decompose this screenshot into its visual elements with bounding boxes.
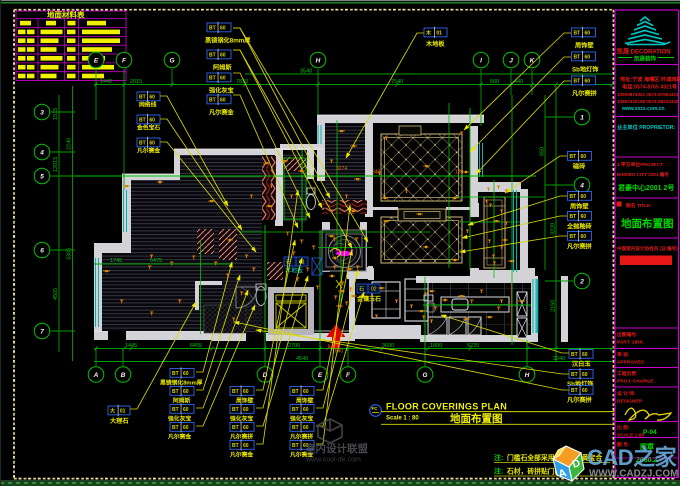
- svg-text:图名 TITLE:: 图名 TITLE:: [626, 202, 652, 209]
- svg-text:BT: BT: [139, 141, 146, 147]
- svg-text:60: 60: [580, 214, 586, 220]
- svg-text:BT: BT: [574, 31, 581, 37]
- svg-text:60: 60: [243, 443, 249, 449]
- svg-text:BT: BT: [570, 214, 577, 220]
- svg-text:60: 60: [582, 372, 588, 378]
- svg-text:3220: 3220: [551, 223, 557, 235]
- svg-text:1800: 1800: [430, 343, 442, 349]
- svg-text:1.甲方单位PROJECT:: 1.甲方单位PROJECT:: [617, 161, 664, 168]
- svg-text:Sb地灯饰: Sb地灯饰: [572, 66, 598, 74]
- svg-text:周饰壁: 周饰壁: [575, 42, 594, 50]
- svg-text:01: 01: [436, 31, 442, 37]
- svg-text:02: 02: [371, 287, 377, 293]
- svg-text:B: B: [121, 372, 126, 379]
- svg-text:BT: BT: [172, 407, 179, 413]
- svg-text:www.cool-de.com: www.cool-de.com: [305, 457, 361, 464]
- svg-text:4540: 4540: [296, 356, 308, 362]
- svg-text:BT: BT: [209, 26, 216, 32]
- svg-text:4505: 4505: [53, 288, 59, 300]
- svg-text:60: 60: [220, 98, 226, 104]
- svg-text:6455: 6455: [190, 343, 202, 349]
- svg-text:2: 2: [579, 278, 584, 285]
- svg-text:BT: BT: [571, 388, 578, 394]
- svg-text:60: 60: [303, 425, 309, 431]
- svg-text:60: 60: [580, 154, 586, 160]
- svg-text:BT: BT: [292, 443, 299, 449]
- svg-text:60: 60: [149, 141, 155, 147]
- svg-text:60: 60: [243, 407, 249, 413]
- svg-text:60: 60: [183, 389, 189, 395]
- svg-text:凡尔赛拼: 凡尔赛拼: [567, 243, 593, 251]
- svg-text:60: 60: [183, 371, 189, 377]
- svg-text:业主单位 PROPRIETOR:: 业主单位 PROPRIETOR:: [617, 123, 675, 131]
- svg-text:电话:0574-8765 4321号: 电话:0574-8765 4321号: [622, 83, 677, 91]
- svg-text:60: 60: [584, 55, 590, 61]
- svg-text:180: 180: [455, 170, 464, 176]
- svg-text:周饰壁: 周饰壁: [570, 203, 589, 211]
- svg-text:01: 01: [120, 409, 126, 415]
- svg-text:FC: FC: [372, 406, 379, 411]
- svg-text:60: 60: [220, 26, 226, 32]
- svg-text:13805874321 0574-87654321: 13805874321 0574-87654321: [617, 92, 679, 97]
- svg-text:4: 4: [579, 182, 584, 189]
- svg-text:凡尔赛拼: 凡尔赛拼: [572, 90, 598, 98]
- svg-text:凡尔赛金: 凡尔赛金: [168, 432, 191, 440]
- svg-text:BT: BT: [571, 372, 578, 378]
- svg-text:大: 大: [110, 408, 115, 415]
- svg-text:PART. 1806.: PART. 1806.: [617, 340, 644, 346]
- svg-text:E: E: [94, 57, 99, 64]
- svg-text:BT: BT: [292, 425, 299, 431]
- svg-text:黑镜钢化8mm厚: 黑镜钢化8mm厚: [205, 37, 251, 45]
- svg-text:60: 60: [243, 425, 249, 431]
- svg-text:60: 60: [220, 53, 226, 59]
- svg-text:13867432198 0574-88223344: 13867432198 0574-88223344: [617, 99, 679, 104]
- svg-text:APPROVED: APPROVED: [617, 360, 644, 366]
- svg-text:注:: 注:: [494, 453, 503, 462]
- svg-text:BT: BT: [292, 407, 299, 413]
- svg-text:BT: BT: [139, 118, 146, 124]
- svg-text:凡尔赛拼: 凡尔赛拼: [567, 396, 593, 404]
- svg-text:7820: 7820: [236, 79, 248, 85]
- svg-text:黑镜钢化8mm厚: 黑镜钢化8mm厚: [160, 378, 203, 386]
- svg-text:60: 60: [243, 389, 249, 395]
- svg-text:BT: BT: [574, 55, 581, 61]
- svg-text:60: 60: [580, 194, 586, 200]
- svg-text:周饰壁: 周饰壁: [236, 396, 254, 404]
- svg-text:BT: BT: [232, 407, 239, 413]
- svg-text:4: 4: [39, 149, 44, 156]
- svg-text:BT: BT: [570, 234, 577, 240]
- svg-text:BT: BT: [172, 389, 179, 395]
- svg-text:60: 60: [303, 389, 309, 395]
- svg-text:BT: BT: [570, 154, 577, 160]
- svg-text:2015: 2015: [130, 79, 142, 85]
- svg-text:强化灰宝: 强化灰宝: [168, 414, 191, 422]
- svg-text:BT: BT: [209, 53, 216, 59]
- svg-text:磁砖: 磁砖: [573, 163, 586, 171]
- svg-text:木: 木: [425, 30, 432, 37]
- svg-text:3274: 3274: [336, 166, 347, 172]
- svg-text:J: J: [509, 57, 513, 64]
- svg-text:周饰壁: 周饰壁: [296, 396, 314, 404]
- svg-text:地址:宁波 海曙区 环城西路: 地址:宁波 海曙区 环城西路: [620, 75, 680, 83]
- svg-text:H: H: [316, 57, 321, 64]
- svg-text:PROJ. CHARGE.: PROJ. CHARGE.: [617, 379, 655, 385]
- svg-text:BT: BT: [172, 371, 179, 377]
- svg-text:2150: 2150: [551, 300, 557, 312]
- svg-text:3240: 3240: [553, 356, 565, 362]
- svg-text:全抛釉砖: 全抛釉砖: [566, 223, 593, 231]
- svg-text:石: 石: [359, 287, 364, 293]
- svg-text:2700: 2700: [288, 343, 300, 349]
- svg-text:H: H: [525, 372, 530, 379]
- svg-text:1515: 1515: [53, 108, 59, 120]
- svg-text:BT: BT: [232, 425, 239, 431]
- svg-text:室内设计联盟: 室内设计联盟: [305, 442, 368, 455]
- svg-text:中国室内设计协会员 (证 编号): 中国室内设计协会员 (证 编号): [617, 245, 678, 252]
- svg-text:出图编号:: 出图编号:: [617, 331, 638, 338]
- svg-text:BT: BT: [571, 352, 578, 358]
- svg-text:60: 60: [149, 95, 155, 101]
- svg-text:BT: BT: [292, 389, 299, 395]
- svg-text:7540: 7540: [391, 79, 403, 85]
- svg-text:汉白玉: 汉白玉: [572, 360, 591, 368]
- svg-text:1445: 1445: [125, 343, 137, 349]
- svg-text:金镶玉石: 金镶玉石: [356, 295, 381, 303]
- svg-text:BT: BT: [209, 98, 216, 104]
- svg-text:注:: 注:: [494, 467, 503, 476]
- svg-text:NINGBO CITY 2001 编号: NINGBO CITY 2001 编号: [617, 171, 669, 178]
- svg-text:木地板: 木地板: [425, 40, 445, 48]
- svg-text:CAD之家: CAD之家: [587, 445, 678, 470]
- svg-text:G: G: [422, 372, 427, 379]
- svg-text:审 核:: 审 核:: [617, 351, 630, 358]
- svg-text:金色宝石: 金色宝石: [136, 124, 160, 132]
- svg-text:60: 60: [183, 425, 189, 431]
- svg-text:5220: 5220: [467, 343, 479, 349]
- svg-text:60: 60: [584, 31, 590, 37]
- svg-text:3540: 3540: [300, 69, 312, 75]
- svg-text:P-04: P-04: [643, 429, 657, 436]
- svg-text:凡尔赛金: 凡尔赛金: [137, 147, 160, 155]
- svg-text:凡尔赛拼: 凡尔赛拼: [230, 432, 253, 440]
- svg-text:强化灰宝: 强化灰宝: [230, 414, 253, 422]
- svg-text:6: 6: [40, 247, 44, 254]
- svg-text:60: 60: [582, 388, 588, 394]
- svg-text:BT: BT: [232, 389, 239, 395]
- svg-text:BT: BT: [209, 76, 216, 82]
- svg-text:DESIGNER: DESIGNER: [617, 399, 643, 405]
- svg-text:FLOOR COVERINGS PLAN: FLOOR COVERINGS PLAN: [386, 402, 507, 412]
- svg-text:60: 60: [220, 76, 226, 82]
- svg-text:60: 60: [149, 118, 155, 124]
- svg-text:阿姆斯: 阿姆斯: [213, 64, 232, 72]
- svg-text:君豪中心2001 2号: 君豪中心2001 2号: [618, 183, 674, 192]
- svg-text:A: A: [93, 372, 99, 379]
- svg-text:3: 3: [40, 109, 44, 116]
- svg-text:I: I: [480, 57, 482, 64]
- svg-text:Scale 1 : 80: Scale 1 : 80: [386, 416, 419, 422]
- svg-text:650: 650: [540, 147, 546, 156]
- svg-text:G: G: [169, 57, 174, 64]
- svg-text:500: 500: [490, 79, 499, 85]
- svg-text:凯晟装饰: 凯晟装饰: [634, 55, 657, 63]
- svg-text:60: 60: [580, 234, 586, 240]
- svg-text:1: 1: [580, 114, 584, 121]
- svg-text:BT: BT: [172, 425, 179, 431]
- svg-text:设 计 师:: 设 计 师:: [617, 390, 636, 397]
- svg-text:地面布置图: 地面布置图: [450, 412, 503, 425]
- svg-text:7: 7: [40, 328, 44, 335]
- svg-text:凡尔赛拼: 凡尔赛拼: [290, 432, 313, 440]
- svg-text:BT: BT: [570, 194, 577, 200]
- svg-text:地面材料表: 地面材料表: [47, 10, 85, 20]
- svg-text:地面布置图: 地面布置图: [621, 217, 674, 230]
- svg-text:60: 60: [303, 407, 309, 413]
- svg-text:60: 60: [584, 79, 590, 85]
- svg-text:1442: 1442: [100, 79, 112, 85]
- svg-text:WWW.CADZJ.COM: WWW.CADZJ.COM: [589, 469, 678, 480]
- svg-text:BT: BT: [574, 79, 581, 85]
- svg-text:阿姆斯: 阿姆斯: [173, 396, 191, 404]
- svg-text:凯晟 DECORATION: 凯晟 DECORATION: [617, 48, 671, 56]
- svg-text:强化灰宝: 强化灰宝: [290, 414, 313, 422]
- svg-text:1745: 1745: [110, 258, 122, 264]
- svg-text:网络线: 网络线: [139, 101, 157, 109]
- svg-text:大理石: 大理石: [110, 417, 129, 425]
- svg-text:5: 5: [40, 173, 44, 180]
- svg-text:E: E: [318, 372, 323, 379]
- svg-text:BT: BT: [232, 443, 239, 449]
- svg-text:www.xxzs.com.cn: www.xxzs.com.cn: [621, 106, 665, 112]
- svg-text:5475: 5475: [150, 258, 162, 264]
- svg-text:2240: 2240: [67, 138, 73, 150]
- svg-text:比 例:: 比 例:: [617, 424, 630, 431]
- svg-text:凡尔赛金: 凡尔赛金: [230, 450, 253, 458]
- svg-text:BT: BT: [139, 95, 146, 101]
- svg-text:强化灰宝: 强化灰宝: [209, 87, 234, 95]
- svg-text:工程负责:: 工程负责:: [617, 370, 638, 377]
- svg-text:60: 60: [183, 407, 189, 413]
- svg-text:凡尔赛金: 凡尔赛金: [209, 109, 235, 117]
- svg-text:12015: 12015: [53, 157, 59, 172]
- svg-text:60: 60: [582, 352, 588, 358]
